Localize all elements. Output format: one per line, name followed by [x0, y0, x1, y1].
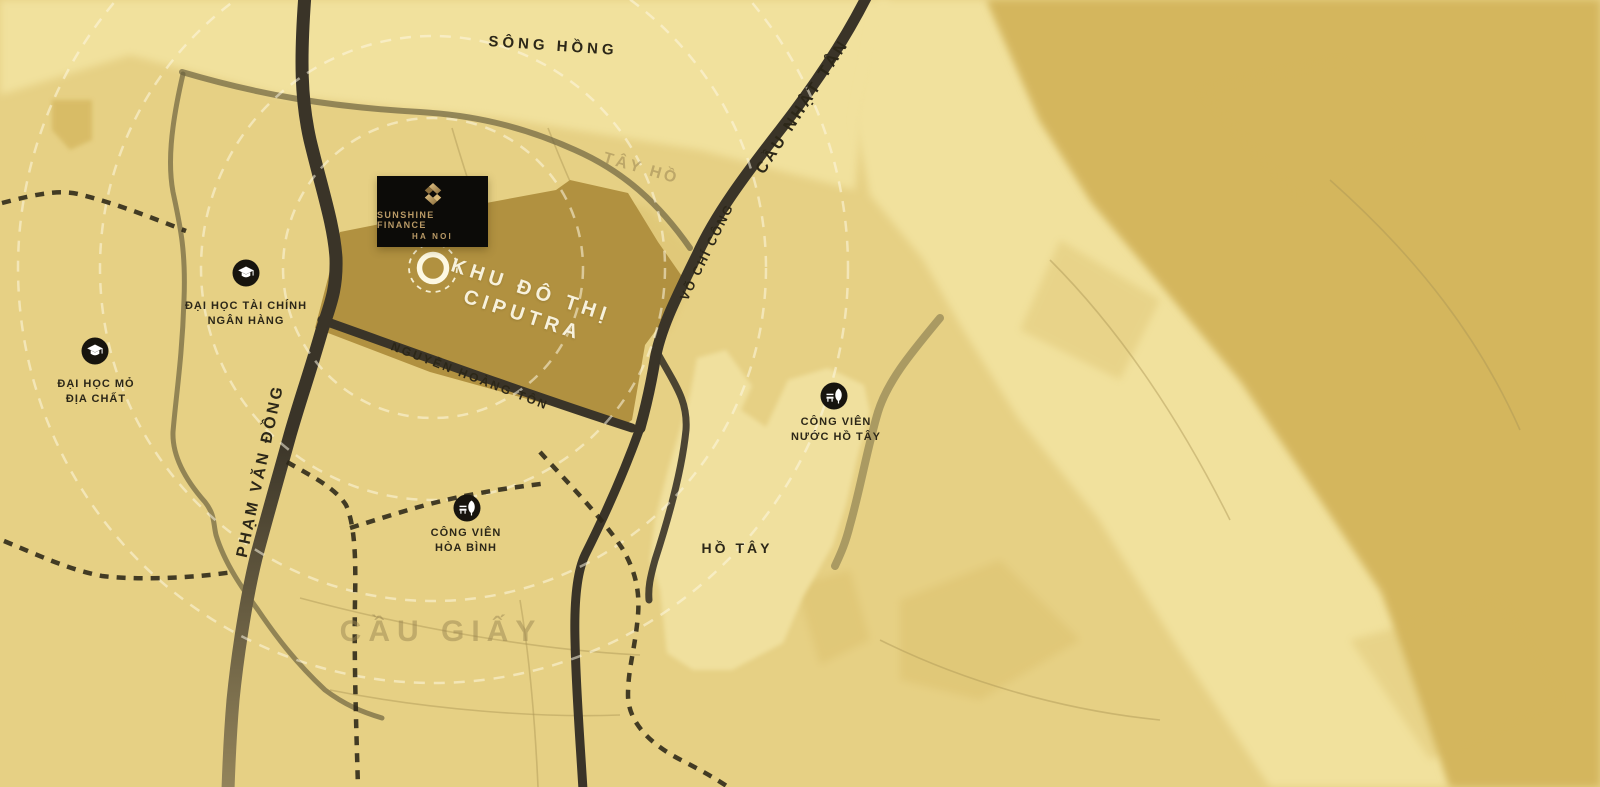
poi-label-dai-hoc-mo: ĐẠI HỌC MỎ ĐỊA CHẤT [57, 377, 134, 407]
poi-label-cong-vien-hoa-binh: CÔNG VIÊN HÒA BÌNH [431, 526, 502, 556]
poi-label-line1: CÔNG VIÊN [431, 526, 502, 541]
shore-notch [52, 100, 92, 150]
poi-label-line2: HÒA BÌNH [431, 541, 502, 556]
logo-subtitle: HA NOI [412, 232, 453, 241]
label-cau-giay-district: CẦU GIẤY [340, 615, 543, 649]
poi-dai-hoc-mo[interactable] [82, 338, 109, 365]
poi-label-dai-hoc-tai-chinh: ĐẠI HỌC TÀI CHÍNH NGÂN HÀNG [185, 299, 307, 329]
graduation-cap-icon [233, 260, 260, 287]
poi-cong-vien-hoa-binh[interactable] [454, 495, 481, 522]
poi-dai-hoc-tai-chinh[interactable] [233, 260, 260, 287]
park-tree-icon [821, 383, 848, 410]
poi-label-line2: NGÂN HÀNG [185, 314, 307, 329]
road-lac-long-quan [575, 428, 640, 787]
poi-label-cong-vien-nuoc: CÔNG VIÊN NƯỚC HỒ TÂY [791, 415, 881, 445]
graduation-cap-icon [82, 338, 109, 365]
label-ho-tay-lake: HỒ TÂY [702, 540, 773, 556]
poi-label-line1: ĐẠI HỌC MỎ [57, 377, 134, 392]
poi-label-line1: CÔNG VIÊN [791, 415, 881, 430]
poi-label-line1: ĐẠI HỌC TÀI CHÍNH [185, 299, 307, 314]
project-logo-card[interactable]: SUNSHINE FINANCE HA NOI [377, 176, 488, 247]
poi-label-line2: ĐỊA CHẤT [57, 392, 134, 407]
poi-label-line2: NƯỚC HỒ TÂY [791, 430, 881, 445]
sunshine-logo-icon [422, 182, 444, 206]
park-tree-icon [454, 495, 481, 522]
poi-cong-vien-nuoc[interactable] [821, 383, 848, 410]
logo-title: SUNSHINE FINANCE [377, 210, 488, 230]
location-map: SÔNG HỒNG CẦU NHẬT TÂN TÂY HỒ VÕ CHÍ CÔN… [0, 0, 1600, 787]
